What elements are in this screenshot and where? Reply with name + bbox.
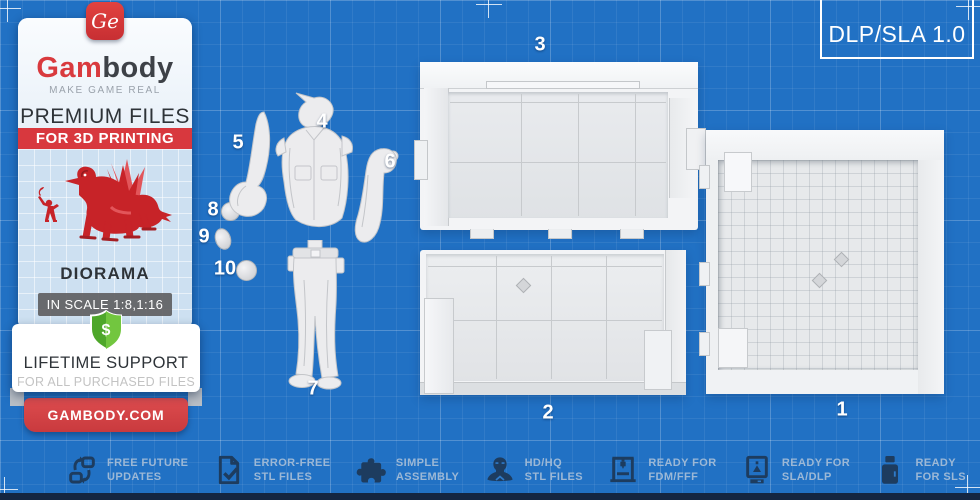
feature-line1: READY FOR: [648, 456, 716, 470]
logotype-dark-part: body: [102, 52, 173, 84]
document-check-icon: [213, 454, 245, 486]
svg-text:$: $: [102, 322, 111, 339]
sla-printer-icon: [741, 454, 773, 486]
premium-files-label: PREMIUM FILES: [18, 105, 192, 129]
part-label-2: 2: [542, 402, 553, 425]
part-label-5: 5: [232, 132, 243, 155]
feature-ready-sls: READYFOR SLS: [874, 454, 965, 486]
feature-error-free: ERROR-FREESTL FILES: [213, 454, 331, 486]
support-title: LIFETIME SUPPORT: [12, 354, 200, 373]
feature-line2: FDM/FFF: [648, 470, 716, 484]
feature-line2: ASSEMBLY: [396, 470, 459, 484]
part-7-legs-render: [280, 240, 352, 392]
feature-line2: STL FILES: [254, 470, 331, 484]
version-badge: DLP/SLA 1.0: [820, 0, 974, 59]
logotype-red-part: Gam: [36, 52, 102, 84]
dollar-shield-icon: $: [89, 310, 123, 350]
part-1-floor-base: [706, 130, 944, 394]
door-opening-block: [724, 152, 752, 192]
feature-line1: READY FOR: [782, 456, 850, 470]
bottom-edge-strip: [0, 493, 980, 500]
feature-simple-assembly: SIMPLEASSEMBLY: [355, 454, 459, 486]
feature-line1: ERROR-FREE: [254, 456, 331, 470]
part-label-10: 10: [214, 258, 236, 281]
monogram-text: Ge: [91, 9, 119, 33]
part-label-8: 8: [207, 199, 218, 222]
feature-line1: READY: [915, 456, 965, 470]
feature-line2: STL FILES: [525, 470, 583, 484]
website-link-bar[interactable]: GAMBODY.COM: [24, 398, 188, 432]
brand-card-body: DIORAMA IN SCALE 1:8,1:16: [18, 149, 192, 330]
part-label-4: 4: [316, 111, 327, 134]
fdm-printer-icon: [607, 454, 639, 486]
part-label-1: 1: [836, 399, 847, 422]
blueprint-canvas: DLP/SLA 1.0 Ge Gambody MAKE GAME REAL PR…: [0, 0, 980, 500]
part-2-lower-wall-panel: [420, 250, 686, 395]
feature-hd-hq: HD/HQSTL FILES: [484, 454, 583, 486]
part-5-raised-arm-render: [216, 110, 288, 222]
part-3-upper-wall-panel: [420, 62, 698, 230]
gambody-monogram-logo: Ge: [86, 2, 124, 40]
puzzle-icon: [355, 454, 387, 486]
feature-line2: UPDATES: [107, 470, 188, 484]
part-10-round-piece: [236, 260, 257, 281]
refresh-icon: [66, 454, 98, 486]
feature-line1: FREE FUTURE: [107, 456, 188, 470]
features-bar: FREE FUTUREUPDATES ERROR-FREESTL FILES S…: [66, 449, 966, 491]
feature-line2: FOR SLS: [915, 470, 965, 484]
crosshair-mark: [476, 0, 502, 18]
part-9-oval-piece: [212, 226, 234, 252]
brand-tagline: MAKE GAME REAL: [18, 85, 192, 96]
feature-line2: SLA/DLP: [782, 470, 850, 484]
for-3d-printing-banner: FOR 3D PRINTING: [18, 128, 192, 149]
bust-icon: [484, 454, 516, 486]
feature-ready-sla: READY FORSLA/DLP: [741, 454, 850, 486]
part-label-9: 9: [198, 226, 209, 249]
part-6-bent-arm-render: [352, 145, 404, 257]
feature-line1: HD/HQ: [525, 456, 583, 470]
dragon-logo-illustration: [27, 155, 183, 255]
feature-free-updates: FREE FUTUREUPDATES: [66, 454, 188, 486]
part-label-7: 7: [307, 378, 318, 401]
ceiling-light-bar: [486, 81, 640, 89]
feature-ready-fdm: READY FORFDM/FFF: [607, 454, 716, 486]
gambody-logotype: Gambody: [18, 54, 192, 83]
part-label-6: 6: [384, 151, 395, 174]
sls-printer-icon: [874, 454, 906, 486]
website-label: GAMBODY.COM: [48, 407, 165, 423]
support-card: $ LIFETIME SUPPORT FOR ALL PURCHASED FIL…: [12, 324, 200, 392]
support-subtitle: FOR ALL PURCHASED FILES: [12, 375, 200, 389]
part-label-3: 3: [534, 34, 545, 57]
version-badge-label: DLP/SLA 1.0: [828, 21, 965, 48]
category-label: DIORAMA: [18, 264, 192, 284]
feature-line1: SIMPLE: [396, 456, 459, 470]
brand-card: Gambody MAKE GAME REAL PREMIUM FILES FOR…: [18, 18, 192, 330]
